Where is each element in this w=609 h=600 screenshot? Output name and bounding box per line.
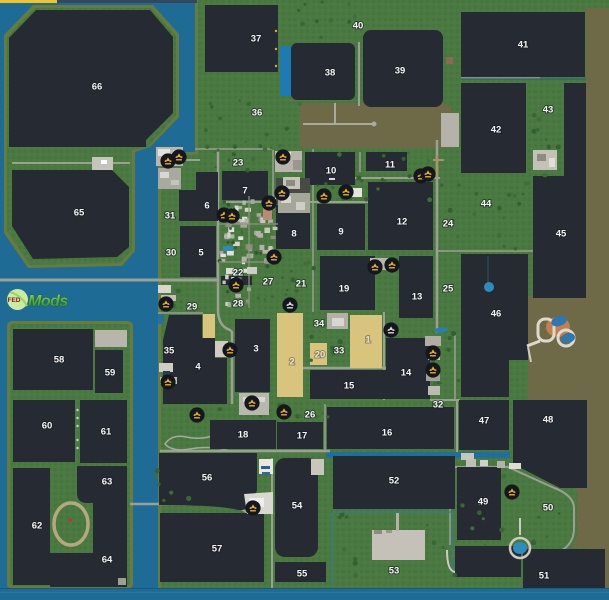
svg-text:63: 63 [102,477,113,488]
svg-text:59: 59 [105,368,116,379]
svg-text:34: 34 [314,319,325,330]
svg-text:4: 4 [195,362,201,373]
svg-text:8: 8 [291,229,296,240]
svg-text:15: 15 [344,381,355,392]
svg-text:25: 25 [443,284,454,295]
svg-text:35: 35 [164,346,175,357]
svg-text:11: 11 [385,160,396,171]
svg-text:5: 5 [198,248,204,259]
svg-text:17: 17 [297,431,308,442]
svg-text:51: 51 [539,571,550,582]
svg-text:61: 61 [101,427,112,438]
svg-text:13: 13 [412,292,423,303]
svg-text:52: 52 [389,476,400,487]
svg-text:48: 48 [543,415,554,426]
svg-text:29: 29 [187,302,198,313]
svg-text:26: 26 [305,410,316,421]
svg-text:62: 62 [32,521,43,532]
svg-text:33: 33 [334,346,345,357]
svg-text:16: 16 [382,428,393,439]
svg-text:2: 2 [289,357,294,368]
svg-text:58: 58 [54,355,65,366]
svg-text:9: 9 [338,227,343,238]
svg-text:1: 1 [365,335,371,346]
svg-text:44: 44 [481,199,492,210]
svg-text:28: 28 [233,299,244,310]
svg-text:49: 49 [478,497,489,508]
svg-text:12: 12 [397,217,408,228]
svg-text:32: 32 [433,400,444,411]
svg-text:31: 31 [165,211,176,222]
svg-text:18: 18 [238,430,249,441]
svg-text:36: 36 [252,108,263,119]
svg-text:3: 3 [253,344,258,355]
svg-text:7: 7 [242,186,247,197]
svg-text:14: 14 [401,368,412,379]
svg-text:41: 41 [518,40,529,51]
svg-text:22: 22 [233,268,244,279]
svg-text:38: 38 [325,68,336,79]
svg-text:66: 66 [92,82,103,93]
svg-text:60: 60 [42,421,53,432]
svg-text:42: 42 [491,125,502,136]
svg-text:21: 21 [296,279,307,290]
svg-text:53: 53 [389,566,400,577]
svg-text:55: 55 [297,569,308,580]
svg-text:Mods: Mods [28,293,68,310]
svg-text:39: 39 [395,66,406,77]
svg-text:37: 37 [251,34,262,45]
svg-text:46: 46 [491,309,502,320]
svg-text:45: 45 [556,229,567,240]
svg-text:65: 65 [74,208,85,219]
svg-text:24: 24 [443,219,454,230]
svg-text:64: 64 [102,555,113,566]
svg-text:40: 40 [353,21,364,32]
svg-text:27: 27 [263,277,274,288]
svg-text:30: 30 [166,248,177,259]
svg-text:10: 10 [326,166,337,177]
svg-text:19: 19 [339,284,350,295]
svg-text:57: 57 [212,544,223,555]
svg-text:23: 23 [233,158,244,169]
svg-text:54: 54 [292,501,303,512]
svg-text:50: 50 [543,503,554,514]
svg-text:56: 56 [202,473,213,484]
svg-text:20: 20 [315,350,326,361]
svg-text:43: 43 [543,105,554,116]
svg-text:FED: FED [8,297,21,304]
svg-text:6: 6 [204,201,209,212]
svg-text:47: 47 [479,416,490,427]
